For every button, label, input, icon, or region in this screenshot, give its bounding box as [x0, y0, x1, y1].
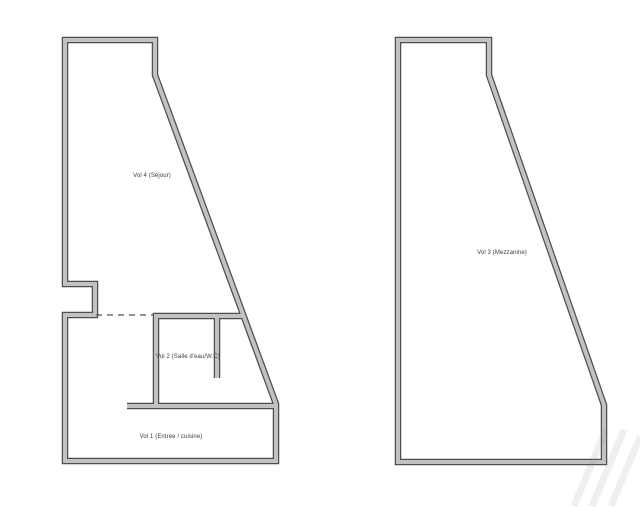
- vol2-room-walls-core: [156, 316, 243, 406]
- label-vol2-salle-deau-wc: Vol 2 (Salle d'eau/W.C): [156, 354, 220, 360]
- label-vol1-entree-cuisine: Vol 1 (Entrée / cuisine): [140, 434, 203, 440]
- left-plan-outer-wall-core: [65, 40, 276, 461]
- floorplan-drawing: [0, 0, 640, 507]
- vol2-room-walls: [156, 316, 243, 406]
- label-vol4-sejour: Vol 4 (Séjour): [133, 173, 171, 179]
- left-plan-outer-wall: [65, 40, 276, 461]
- label-vol3-mezzanine: Vol 3 (Mezzanine): [477, 250, 527, 256]
- floorplan-canvas: Vol 4 (Séjour) Vol 2 (Salle d'eau/W.C) V…: [0, 0, 640, 507]
